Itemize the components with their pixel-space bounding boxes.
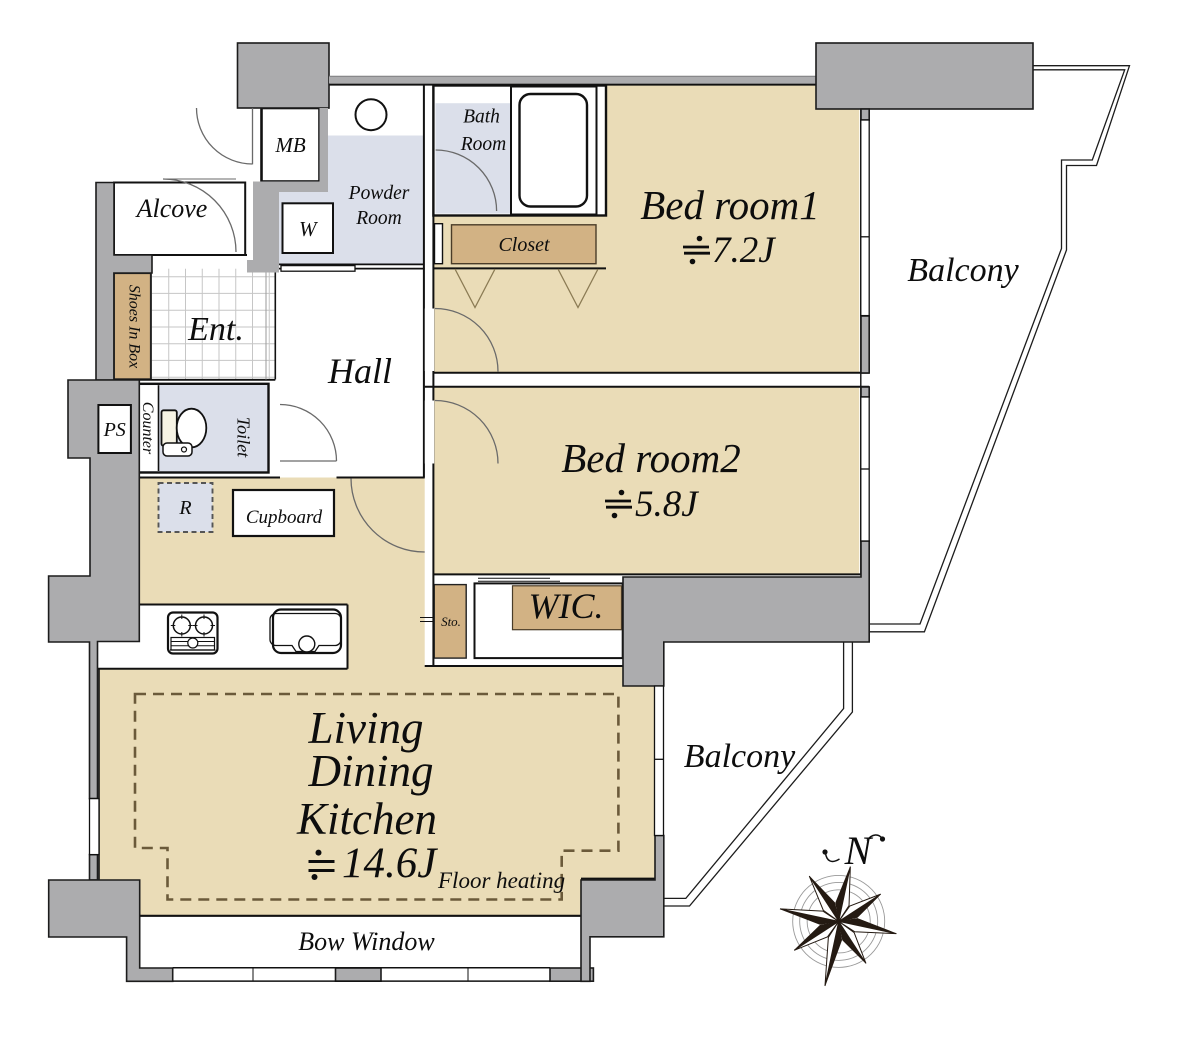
svg-text:Cupboard: Cupboard	[246, 507, 323, 528]
svg-text:Balcony: Balcony	[907, 252, 1019, 289]
svg-text:R: R	[178, 497, 191, 519]
svg-text:Bed room2: Bed room2	[561, 435, 741, 481]
svg-text:Bow Window: Bow Window	[298, 927, 435, 956]
svg-text:Ent.: Ent.	[187, 311, 244, 348]
svg-text:WIC.: WIC.	[529, 586, 604, 626]
svg-text:Room: Room	[460, 134, 507, 155]
svg-text:Alcove: Alcove	[135, 194, 208, 223]
svg-text:Floor heating: Floor heating	[437, 868, 565, 893]
svg-text:Bed room1: Bed room1	[640, 182, 820, 228]
svg-text:Kitchen: Kitchen	[296, 794, 437, 844]
svg-text:Powder: Powder	[348, 183, 410, 204]
svg-text:7.2J: 7.2J	[712, 230, 776, 271]
svg-text:Closet: Closet	[498, 234, 550, 256]
svg-text:N: N	[844, 828, 874, 873]
svg-text:5.8J: 5.8J	[635, 484, 699, 525]
svg-text:14.6J: 14.6J	[342, 840, 438, 887]
svg-text:W: W	[299, 217, 319, 241]
svg-text:Toilet: Toilet	[234, 417, 254, 458]
svg-text:Bath: Bath	[463, 107, 500, 128]
svg-text:Counter: Counter	[139, 402, 156, 455]
svg-text:Dining: Dining	[307, 746, 433, 796]
svg-text:Room: Room	[355, 208, 402, 229]
svg-text:Hall: Hall	[327, 351, 392, 391]
svg-text:Shoes In Box: Shoes In Box	[126, 285, 143, 369]
svg-text:PS: PS	[103, 419, 126, 441]
svg-text:MB: MB	[274, 133, 305, 157]
svg-text:Balcony: Balcony	[684, 738, 796, 775]
svg-text:Sto.: Sto.	[441, 614, 461, 629]
